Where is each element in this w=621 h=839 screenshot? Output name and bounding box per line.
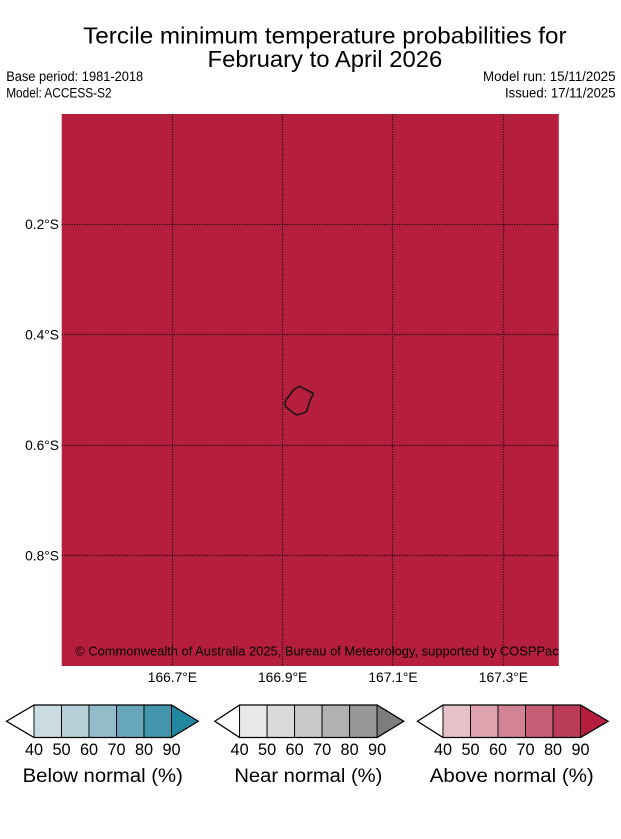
svg-text:50: 50	[52, 741, 70, 759]
svg-text:0.8°S: 0.8°S	[25, 549, 59, 564]
svg-text:Model: ACCESS-S2: Model: ACCESS-S2	[6, 86, 111, 101]
svg-text:0.4°S: 0.4°S	[25, 328, 59, 343]
svg-text:Above normal (%): Above normal (%)	[430, 765, 594, 787]
svg-text:167.3°E: 167.3°E	[479, 670, 528, 685]
svg-text:166.7°E: 166.7°E	[148, 670, 197, 685]
svg-text:80: 80	[341, 741, 359, 759]
svg-text:© Commonwealth of Australia 20: © Commonwealth of Australia 2025, Bureau…	[75, 644, 559, 659]
svg-text:60: 60	[286, 741, 304, 759]
svg-text:70: 70	[516, 741, 534, 759]
svg-text:0.2°S: 0.2°S	[25, 217, 59, 232]
svg-text:90: 90	[368, 741, 386, 759]
svg-text:Base period: 1981-2018: Base period: 1981-2018	[6, 69, 143, 84]
svg-text:166.9°E: 166.9°E	[258, 670, 307, 685]
svg-text:60: 60	[489, 741, 507, 759]
svg-text:60: 60	[80, 741, 98, 759]
svg-text:50: 50	[461, 741, 479, 759]
svg-text:Near normal (%): Near normal (%)	[234, 765, 382, 787]
svg-text:167.1°E: 167.1°E	[368, 670, 417, 685]
svg-text:50: 50	[258, 741, 276, 759]
svg-text:40: 40	[231, 741, 249, 759]
svg-text:Issued: 17/11/2025: Issued: 17/11/2025	[505, 86, 616, 101]
svg-text:90: 90	[162, 741, 180, 759]
svg-text:0.6°S: 0.6°S	[25, 438, 59, 453]
svg-text:February to April 2026: February to April 2026	[208, 46, 443, 72]
svg-text:40: 40	[25, 741, 43, 759]
svg-text:90: 90	[571, 741, 589, 759]
svg-text:Below normal (%): Below normal (%)	[23, 765, 183, 787]
svg-text:40: 40	[434, 741, 452, 759]
svg-text:Tercile minimum temperature pr: Tercile minimum temperature probabilitie…	[83, 23, 567, 49]
svg-text:70: 70	[107, 741, 125, 759]
svg-text:70: 70	[313, 741, 331, 759]
svg-text:Model run: 15/11/2025: Model run: 15/11/2025	[483, 69, 616, 84]
svg-text:80: 80	[135, 741, 153, 759]
svg-text:80: 80	[544, 741, 562, 759]
